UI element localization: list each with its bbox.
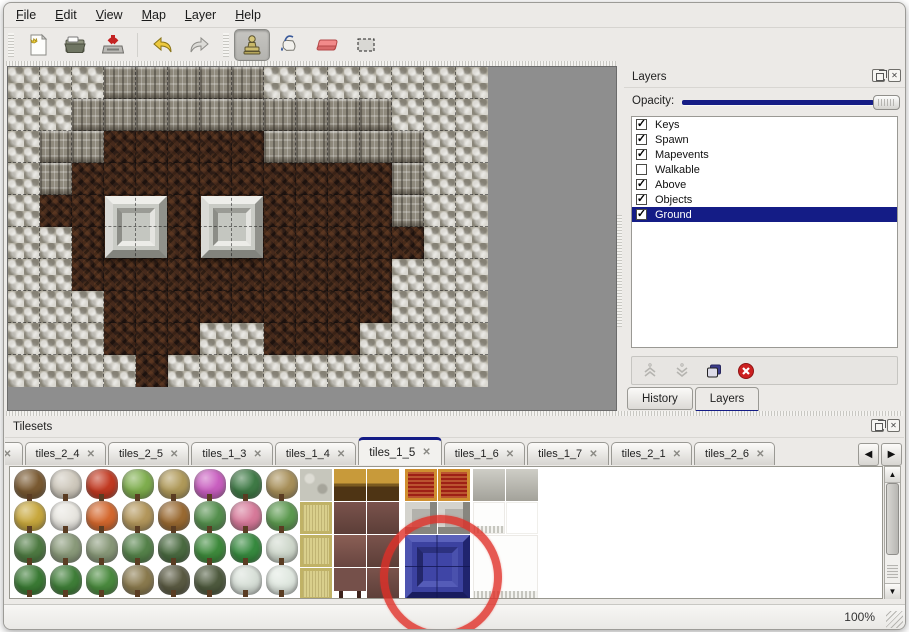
map-tile-cave-floor[interactable]: [264, 163, 296, 195]
tileset-plant-tile[interactable]: [122, 533, 154, 563]
map-tile-cliff-wall[interactable]: [328, 99, 360, 131]
open-file-button[interactable]: [57, 29, 93, 61]
tileset-tile-maroon-legs[interactable]: [334, 568, 366, 599]
layer-name: Ground: [655, 209, 692, 221]
map-tile-cliff-wall[interactable]: [360, 99, 392, 131]
tab-close-icon[interactable]: ✕: [253, 449, 261, 460]
map-tile-stone-ground[interactable]: [8, 227, 40, 259]
map-tile-stone-ground[interactable]: [8, 323, 40, 355]
map-tile-stone-ground[interactable]: [8, 99, 40, 131]
map-tile-stone-ground[interactable]: [40, 99, 72, 131]
map-tile-stone-ground[interactable]: [8, 291, 40, 323]
tab-close-icon[interactable]: ✕: [87, 449, 95, 460]
tileset-tab-label: tiles_2_5: [119, 448, 163, 460]
map-tile-cliff-wall[interactable]: [168, 99, 200, 131]
scrollbar-thumb[interactable]: [886, 483, 899, 555]
tileset-tile-table-gold[interactable]: [334, 469, 366, 501]
map-tile-stone-ground[interactable]: [40, 355, 72, 387]
tileset-plant-tile[interactable]: [122, 469, 154, 499]
map-tile-stone-ground[interactable]: [424, 227, 456, 259]
map-tile-cave-floor[interactable]: [168, 163, 200, 195]
rect-select-tool-button[interactable]: [348, 29, 384, 61]
tileset-tab-tiles_1_5[interactable]: tiles_1_5✕: [358, 437, 441, 465]
map-tile-stone-ground[interactable]: [424, 291, 456, 323]
map-tile-cave-floor[interactable]: [136, 259, 168, 291]
layer-checkbox-objects[interactable]: ✓: [636, 194, 647, 205]
layer-row-keys[interactable]: ✓Keys: [632, 117, 897, 132]
map-tile-cliff-wall[interactable]: [296, 99, 328, 131]
map-tile-cave-floor[interactable]: [360, 163, 392, 195]
map-tile-stone-ground[interactable]: [392, 355, 424, 387]
eraser-icon: [314, 32, 342, 58]
map-tile-cave-floor[interactable]: [168, 259, 200, 291]
layer-row-walkable[interactable]: Walkable: [632, 162, 897, 177]
tileset-tile-frame-gray[interactable]: [405, 502, 437, 534]
tileset-tab-tiles_2_4[interactable]: tiles_2_4✕: [25, 442, 106, 465]
map-tile-stone-ground[interactable]: [456, 99, 488, 131]
stamp-tool-button[interactable]: [234, 29, 270, 61]
tileset-tab-tiles_1_4[interactable]: tiles_1_4✕: [275, 442, 356, 465]
redo-button[interactable]: [182, 29, 218, 61]
map-tile-cave-floor[interactable]: [72, 163, 104, 195]
map-tile-cave-floor[interactable]: [40, 195, 72, 227]
map-tile-cliff-wall[interactable]: [328, 131, 360, 163]
map-tile-stone-ground[interactable]: [328, 67, 360, 99]
map-tile-stone-ground[interactable]: [8, 163, 40, 195]
tileset-tab-label: tiles_2_6: [705, 448, 749, 460]
scroll-up-button[interactable]: ▲: [885, 467, 900, 483]
map-tile-cave-floor[interactable]: [136, 355, 168, 387]
tileset-tile-frame-gray[interactable]: [438, 502, 470, 534]
layer-name: Spawn: [655, 134, 689, 146]
map-tile-stone-ground[interactable]: [424, 323, 456, 355]
map-tile-cave-floor[interactable]: [264, 323, 296, 355]
tab-layers[interactable]: Layers: [695, 387, 760, 413]
map-tile-cave-floor[interactable]: [360, 291, 392, 323]
panel-splitter[interactable]: [617, 215, 622, 327]
tab-close-icon[interactable]: ✕: [170, 449, 178, 460]
plant-trunk: [171, 526, 176, 533]
toolbar-separator: [137, 33, 138, 57]
map-tile-cave-floor[interactable]: [104, 291, 136, 323]
tab-close-icon[interactable]: ✕: [589, 449, 597, 460]
map-tile-cliff-wall[interactable]: [264, 131, 296, 163]
tileset-plant-tile[interactable]: [122, 501, 154, 531]
map-tile-stone-ground[interactable]: [360, 67, 392, 99]
tab-close-icon[interactable]: ✕: [756, 449, 764, 460]
map-tile-cliff-wall[interactable]: [104, 99, 136, 131]
plant-trunk: [27, 590, 32, 597]
tileset-tile-maroon[interactable]: [367, 535, 399, 567]
map-tile-cave-floor[interactable]: [168, 195, 200, 227]
map-tile-stone-ground[interactable]: [104, 355, 136, 387]
tileset-tile-stone[interactable]: [300, 469, 332, 501]
map-tile-stone-ground[interactable]: [392, 259, 424, 291]
map-tile-cliff-wall[interactable]: [360, 131, 392, 163]
map-tile-cave-floor[interactable]: [264, 291, 296, 323]
opacity-slider-track[interactable]: [682, 100, 874, 105]
map-tile-cave-floor[interactable]: [328, 195, 360, 227]
tileset-tile-mat-tan[interactable]: [300, 535, 332, 567]
map-tile-cliff-wall[interactable]: [104, 67, 136, 99]
layer-checkbox-spawn[interactable]: ✓: [636, 134, 647, 145]
map-tile-cave-floor[interactable]: [296, 195, 328, 227]
map-tile-cave-floor[interactable]: [328, 323, 360, 355]
tileset-content[interactable]: [9, 466, 883, 599]
map-tile-cave-floor[interactable]: [296, 323, 328, 355]
map-canvas[interactable]: [7, 66, 617, 411]
map-pillar-block[interactable]: [201, 196, 263, 258]
float-panel-button[interactable]: [872, 69, 885, 82]
tileset-plant-tile[interactable]: [266, 469, 298, 499]
map-tile-stone-ground[interactable]: [8, 259, 40, 291]
map-tile-cave-floor[interactable]: [104, 163, 136, 195]
tileset-tile-white-fringe[interactable]: [473, 535, 538, 599]
map-tile-stone-ground[interactable]: [392, 291, 424, 323]
tileset-plant-tile[interactable]: [50, 469, 82, 499]
tileset-plant-tile[interactable]: [14, 533, 46, 563]
tileset-plant-tile[interactable]: [230, 501, 262, 531]
map-tile-cliff-wall[interactable]: [40, 131, 72, 163]
tileset-plant-tile[interactable]: [86, 501, 118, 531]
plant-trunk: [99, 494, 104, 501]
map-tile-cave-floor[interactable]: [296, 291, 328, 323]
map-tile-stone-ground[interactable]: [424, 355, 456, 387]
map-tile-stone-ground[interactable]: [424, 195, 456, 227]
map-tile-cave-floor[interactable]: [104, 323, 136, 355]
map-tile-cave-floor[interactable]: [200, 259, 232, 291]
map-tile-stone-ground[interactable]: [72, 67, 104, 99]
tileset-plant-tile[interactable]: [50, 565, 82, 595]
map-tile-cliff-wall[interactable]: [392, 195, 424, 227]
map-tile-stone-ground[interactable]: [8, 67, 40, 99]
map-tile-cave-floor[interactable]: [136, 163, 168, 195]
map-tile-stone-ground[interactable]: [40, 67, 72, 99]
map-tile-cave-floor[interactable]: [232, 163, 264, 195]
map-tile-cliff-wall[interactable]: [392, 163, 424, 195]
map-tile-stone-ground[interactable]: [392, 99, 424, 131]
map-tile-cave-floor[interactable]: [264, 227, 296, 259]
map-tile-cave-floor[interactable]: [328, 291, 360, 323]
scroll-down-button[interactable]: ▼: [885, 583, 900, 599]
map-tile-stone-ground[interactable]: [456, 323, 488, 355]
tileset-plant-tile[interactable]: [158, 469, 190, 499]
layer-row-mapevents[interactable]: ✓Mapevents: [632, 147, 897, 162]
layer-checkbox-ground[interactable]: ✓: [636, 209, 647, 220]
map-tile-cave-floor[interactable]: [232, 259, 264, 291]
map-tile-stone-ground[interactable]: [8, 131, 40, 163]
close-tilesets-button[interactable]: ✕: [887, 419, 900, 432]
map-tile-stone-ground[interactable]: [456, 227, 488, 259]
map-tile-stone-ground[interactable]: [264, 67, 296, 99]
map-tile-cliff-wall[interactable]: [200, 99, 232, 131]
tileset-plant-tile[interactable]: [266, 501, 298, 531]
tileset-tab-tiles_1_6[interactable]: tiles_1_6✕: [444, 442, 525, 465]
map-tile-cave-floor[interactable]: [72, 259, 104, 291]
map-tile-stone-ground[interactable]: [328, 355, 360, 387]
tileset-tile-carpet-red[interactable]: [405, 469, 437, 501]
map-tile-cave-floor[interactable]: [296, 259, 328, 291]
map-tile-stone-ground[interactable]: [424, 259, 456, 291]
tileset-plant-tile[interactable]: [230, 565, 262, 595]
map-tile-grid[interactable]: [8, 67, 488, 387]
tileset-plant-tile[interactable]: [194, 469, 226, 499]
layer-row-ground[interactable]: ✓Ground: [632, 207, 897, 222]
tab-close-icon[interactable]: ✕: [673, 449, 681, 460]
tileset-plant-tile[interactable]: [50, 501, 82, 531]
map-tile-cave-floor[interactable]: [200, 163, 232, 195]
plant-trunk: [279, 526, 284, 533]
tileset-tab-tiles_2_5[interactable]: tiles_2_5✕: [108, 442, 189, 465]
float-tilesets-button[interactable]: [871, 419, 884, 432]
map-tile-cave-floor[interactable]: [360, 195, 392, 227]
plant-trunk: [243, 526, 248, 533]
tileset-tile-mat-tan[interactable]: [300, 502, 332, 534]
resize-grip[interactable]: [886, 611, 903, 628]
tab-close-icon[interactable]: ✕: [506, 449, 514, 460]
tileset-tile-blue-block[interactable]: [405, 535, 470, 599]
tileset-tile-white[interactable]: [506, 502, 538, 534]
map-tile-stone-ground[interactable]: [232, 323, 264, 355]
plant-trunk: [27, 494, 32, 501]
lower-layer-button[interactable]: [672, 361, 692, 381]
map-tile-stone-ground[interactable]: [72, 323, 104, 355]
tileset-tab-tiles_1_3[interactable]: tiles_1_3✕: [191, 442, 272, 465]
layer-checkbox-keys[interactable]: ✓: [636, 119, 647, 130]
duplicate-layer-button[interactable]: [704, 361, 724, 381]
undo-icon: [148, 32, 176, 58]
map-tile-cave-floor[interactable]: [136, 323, 168, 355]
map-tile-cave-floor[interactable]: [72, 227, 104, 259]
map-tile-cliff-wall[interactable]: [40, 163, 72, 195]
delete-layer-icon: [737, 362, 755, 380]
raise-layer-button[interactable]: [640, 361, 660, 381]
tileset-plant-tile[interactable]: [194, 565, 226, 595]
layer-row-spawn[interactable]: ✓Spawn: [632, 132, 897, 147]
menu-view[interactable]: View: [96, 8, 123, 22]
map-tile-stone-ground[interactable]: [424, 67, 456, 99]
map-tile-cave-floor[interactable]: [232, 131, 264, 163]
tileset-tab-tiles_2_6[interactable]: tiles_2_6✕: [694, 442, 775, 465]
menu-layer[interactable]: Layer: [185, 8, 216, 22]
layer-checkbox-walkable[interactable]: [636, 164, 647, 175]
tileset-plant-tile[interactable]: [266, 533, 298, 563]
map-tile-cliff-wall[interactable]: [232, 67, 264, 99]
tileset-tab-tiles_1_7[interactable]: tiles_1_7✕: [527, 442, 608, 465]
map-tile-cave-floor[interactable]: [328, 227, 360, 259]
new-file-button[interactable]: [19, 29, 55, 61]
map-tile-stone-ground[interactable]: [456, 291, 488, 323]
tileset-tile-mat-tan[interactable]: [300, 568, 332, 599]
map-tile-cave-floor[interactable]: [264, 259, 296, 291]
tileset-plant-tile[interactable]: [194, 533, 226, 563]
map-tile-stone-ground[interactable]: [72, 355, 104, 387]
map-tile-cave-floor[interactable]: [104, 259, 136, 291]
tileset-plant-tile[interactable]: [14, 565, 46, 595]
map-tile-stone-ground[interactable]: [424, 131, 456, 163]
map-tile-stone-ground[interactable]: [424, 99, 456, 131]
save-file-button[interactable]: [95, 29, 131, 61]
map-tile-stone-ground[interactable]: [392, 323, 424, 355]
map-tile-stone-ground[interactable]: [264, 355, 296, 387]
map-tile-cliff-wall[interactable]: [136, 99, 168, 131]
layer-checkbox-above[interactable]: ✓: [636, 179, 647, 190]
menu-edit[interactable]: Edit: [55, 8, 77, 22]
tileset-plant-tile[interactable]: [230, 469, 262, 499]
map-tile-cave-floor[interactable]: [168, 323, 200, 355]
map-tile-cave-floor[interactable]: [168, 131, 200, 163]
menu-map[interactable]: Map: [142, 8, 166, 22]
map-tile-stone-ground[interactable]: [200, 323, 232, 355]
map-pillar-block[interactable]: [105, 196, 167, 258]
map-tile-cliff-wall[interactable]: [72, 131, 104, 163]
tileset-plant-tile[interactable]: [266, 565, 298, 595]
map-tile-stone-ground[interactable]: [40, 227, 72, 259]
map-tile-cliff-wall[interactable]: [136, 67, 168, 99]
map-tile-cave-floor[interactable]: [200, 131, 232, 163]
tileset-plant-tile[interactable]: [158, 533, 190, 563]
map-tile-cave-floor[interactable]: [72, 195, 104, 227]
map-tile-stone-ground[interactable]: [456, 355, 488, 387]
layer-name: Objects: [655, 194, 692, 206]
menubar: FileEditViewMapLayerHelp: [4, 3, 905, 28]
fill-tool-button[interactable]: [272, 29, 308, 61]
tileset-tile-carpet-red[interactable]: [438, 469, 470, 501]
layer-checkbox-mapevents[interactable]: ✓: [636, 149, 647, 160]
map-tile-cave-floor[interactable]: [136, 291, 168, 323]
tileset-tile-maroon-light[interactable]: [334, 535, 366, 567]
close-panel-button[interactable]: ✕: [888, 69, 901, 82]
map-tile-stone-ground[interactable]: [200, 355, 232, 387]
plant-trunk: [135, 558, 140, 565]
layer-row-above[interactable]: ✓Above: [632, 177, 897, 192]
tileset-plant-tile[interactable]: [50, 533, 82, 563]
delete-layer-button[interactable]: [736, 361, 756, 381]
opacity-slider-handle[interactable]: [873, 95, 900, 110]
map-tile-cave-floor[interactable]: [168, 227, 200, 259]
map-tile-cliff-wall[interactable]: [72, 99, 104, 131]
tileset-plant-tile[interactable]: [86, 533, 118, 563]
tileset-tile-maroon[interactable]: [367, 568, 399, 599]
tileset-plant-tile[interactable]: [122, 565, 154, 595]
tileset-tab-3[interactable]: 3✕: [5, 442, 23, 465]
tileset-tile-maroon[interactable]: [334, 502, 366, 534]
tileset-plant-tile[interactable]: [14, 501, 46, 531]
tileset-tile-maroon[interactable]: [367, 502, 399, 534]
map-tile-cliff-wall[interactable]: [392, 131, 424, 163]
map-tile-cliff-wall[interactable]: [296, 131, 328, 163]
plant-trunk: [135, 590, 140, 597]
map-tile-stone-ground[interactable]: [456, 259, 488, 291]
layers-panel: Layers ✕ Opacity: ✓Keys✓Spawn✓MapeventsW…: [624, 66, 905, 411]
scroll-tabs-right-button[interactable]: ▶: [881, 443, 902, 466]
map-tile-cliff-wall[interactable]: [200, 67, 232, 99]
map-tile-stone-ground[interactable]: [40, 323, 72, 355]
tileset-plant-tile[interactable]: [158, 565, 190, 595]
map-tile-stone-ground[interactable]: [232, 355, 264, 387]
map-tile-stone-ground[interactable]: [40, 259, 72, 291]
map-tile-stone-ground[interactable]: [8, 355, 40, 387]
map-tile-cliff-wall[interactable]: [232, 99, 264, 131]
map-tile-stone-ground[interactable]: [456, 131, 488, 163]
layer-row-objects[interactable]: ✓Objects: [632, 192, 897, 207]
map-tile-stone-ground[interactable]: [296, 355, 328, 387]
tileset-plant-tile[interactable]: [86, 469, 118, 499]
opacity-row: Opacity:: [624, 92, 905, 112]
tileset-scrollbar[interactable]: ▲ ▼: [884, 466, 901, 599]
map-tile-cave-floor[interactable]: [328, 259, 360, 291]
map-tile-stone-ground[interactable]: [360, 323, 392, 355]
tileset-tile-silver[interactable]: [473, 469, 505, 501]
map-tile-cave-floor[interactable]: [392, 227, 424, 259]
scroll-tabs-left-button[interactable]: ◀: [858, 443, 879, 466]
menu-file[interactable]: File: [16, 8, 36, 22]
tileset-tile-table-gold[interactable]: [367, 469, 399, 501]
map-tile-stone-ground[interactable]: [168, 355, 200, 387]
close-icon: ✕: [891, 71, 898, 80]
map-tile-cave-floor[interactable]: [264, 195, 296, 227]
tab-close-icon[interactable]: ✕: [422, 447, 430, 458]
map-tile-cave-floor[interactable]: [296, 163, 328, 195]
layer-name: Walkable: [655, 164, 700, 176]
map-tile-stone-ground[interactable]: [456, 163, 488, 195]
map-tile-stone-ground[interactable]: [296, 67, 328, 99]
tileset-plant-tile[interactable]: [194, 501, 226, 531]
map-tile-cave-floor[interactable]: [232, 291, 264, 323]
map-tile-stone-ground[interactable]: [8, 195, 40, 227]
scrollbar-grip[interactable]: [887, 565, 898, 578]
plant-trunk: [243, 558, 248, 565]
tab-close-icon[interactable]: ✕: [5, 449, 12, 460]
menu-help[interactable]: Help: [235, 8, 261, 22]
tileset-plant-tile[interactable]: [230, 533, 262, 563]
tab-close-icon[interactable]: ✕: [337, 449, 345, 460]
map-tile-stone-ground[interactable]: [456, 67, 488, 99]
plant-trunk: [207, 494, 212, 501]
map-tile-cliff-wall[interactable]: [264, 99, 296, 131]
plant-trunk: [63, 590, 68, 597]
map-tile-stone-ground[interactable]: [360, 355, 392, 387]
map-tile-cave-floor[interactable]: [136, 131, 168, 163]
map-tile-cliff-wall[interactable]: [168, 67, 200, 99]
map-tile-cave-floor[interactable]: [168, 291, 200, 323]
eraser-tool-button[interactable]: [310, 29, 346, 61]
map-tile-stone-ground[interactable]: [456, 195, 488, 227]
tileset-tile-white-fringe[interactable]: [473, 502, 505, 534]
tileset-plant-tile[interactable]: [14, 469, 46, 499]
map-tile-stone-ground[interactable]: [392, 67, 424, 99]
map-tile-cave-floor[interactable]: [360, 259, 392, 291]
map-tile-stone-ground[interactable]: [40, 291, 72, 323]
map-tile-stone-ground[interactable]: [72, 291, 104, 323]
tileset-tab-tiles_2_1[interactable]: tiles_2_1✕: [611, 442, 692, 465]
map-tile-cave-floor[interactable]: [104, 131, 136, 163]
map-tile-cave-floor[interactable]: [296, 227, 328, 259]
close-icon: ✕: [890, 421, 897, 430]
toolbar-grip[interactable]: [8, 33, 14, 57]
tileset-tile-silver[interactable]: [506, 469, 538, 501]
tileset-tab-label: tiles_1_7: [538, 448, 582, 460]
tileset-plant-tile[interactable]: [158, 501, 190, 531]
undo-button[interactable]: [144, 29, 180, 61]
map-tile-cave-floor[interactable]: [360, 227, 392, 259]
map-tile-cave-floor[interactable]: [328, 163, 360, 195]
tileset-plant-tile[interactable]: [86, 565, 118, 595]
map-tile-stone-ground[interactable]: [424, 163, 456, 195]
map-tile-cave-floor[interactable]: [200, 291, 232, 323]
toolbar-grip-2[interactable]: [223, 33, 229, 57]
tab-history[interactable]: History: [627, 387, 693, 410]
